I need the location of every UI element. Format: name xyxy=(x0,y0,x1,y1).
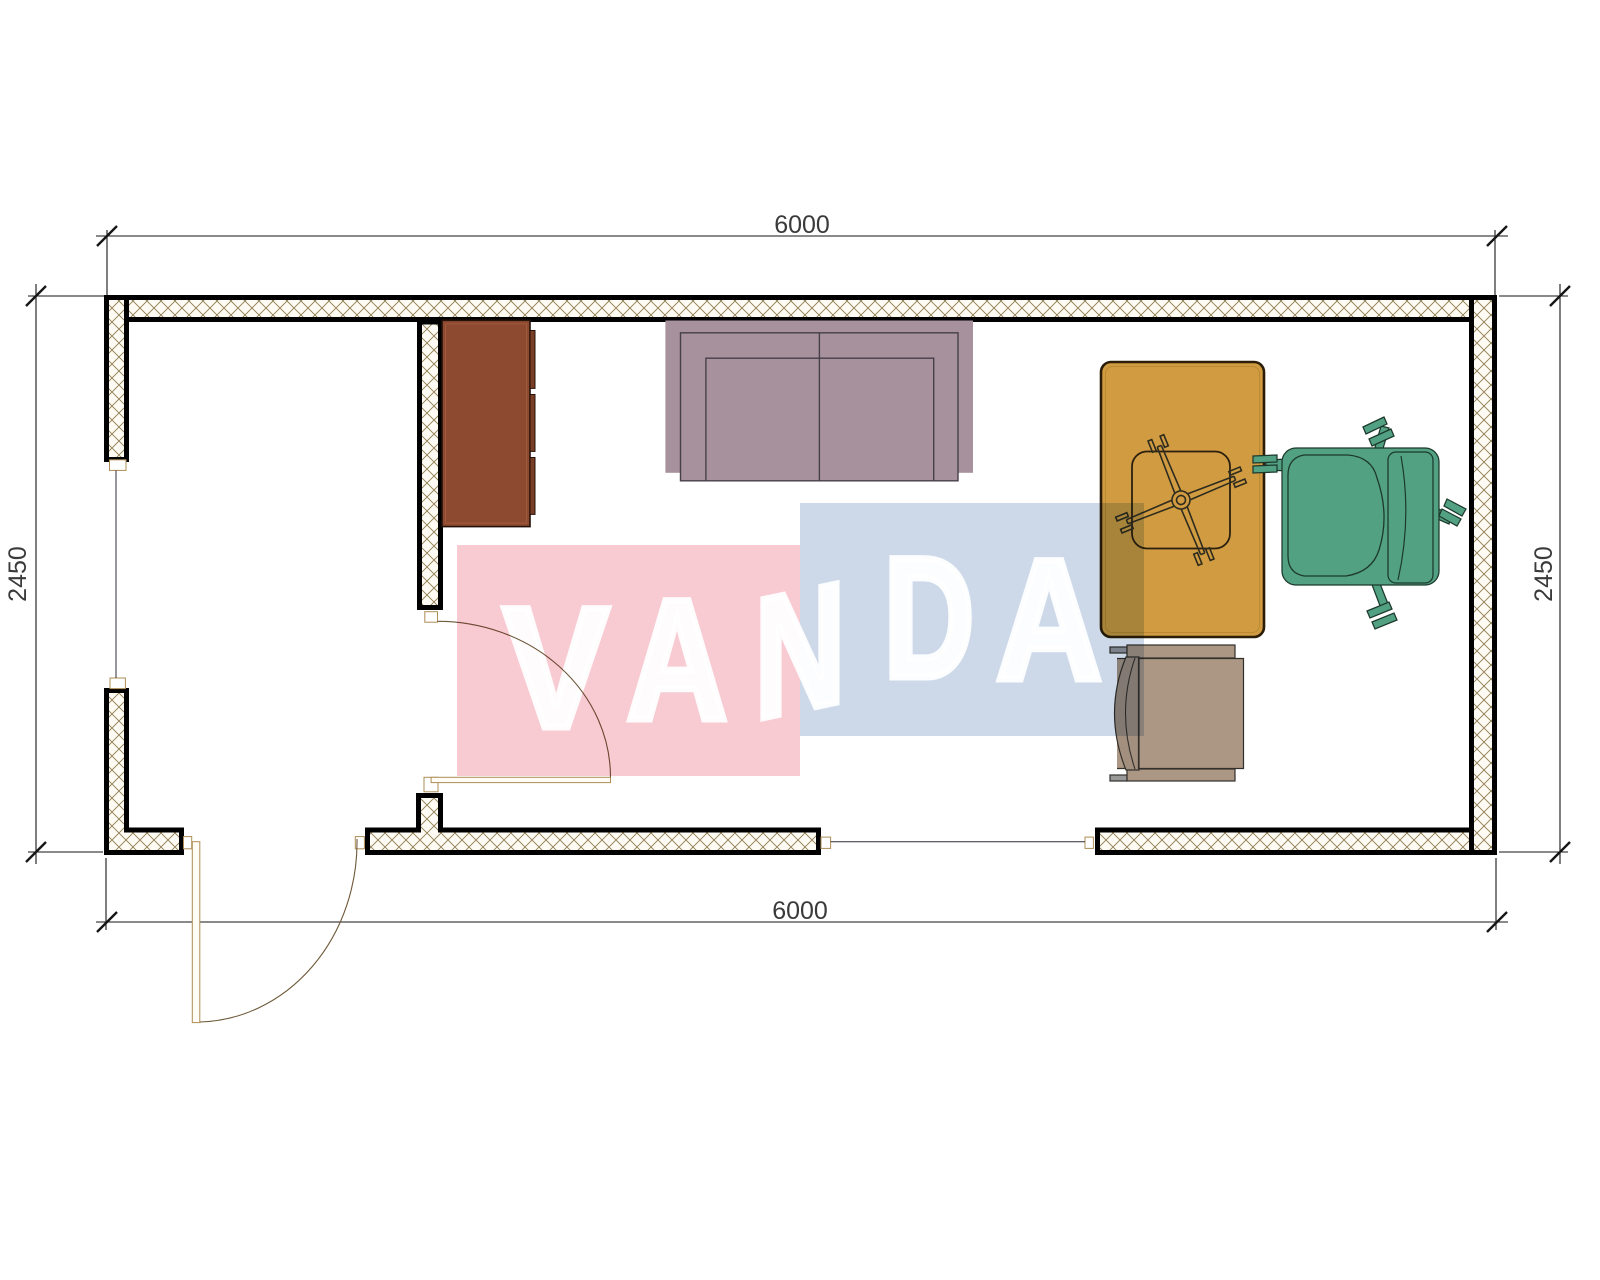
svg-text:2450: 2450 xyxy=(1530,546,1558,602)
svg-text:D: D xyxy=(884,522,975,714)
svg-text:A: A xyxy=(627,564,728,756)
svg-text:N: N xyxy=(755,545,846,756)
svg-text:6000: 6000 xyxy=(774,211,830,239)
svg-text:6000: 6000 xyxy=(772,897,828,925)
svg-text:A: A xyxy=(996,524,1102,716)
svg-text:V: V xyxy=(503,572,609,764)
svg-text:2450: 2450 xyxy=(4,546,32,602)
